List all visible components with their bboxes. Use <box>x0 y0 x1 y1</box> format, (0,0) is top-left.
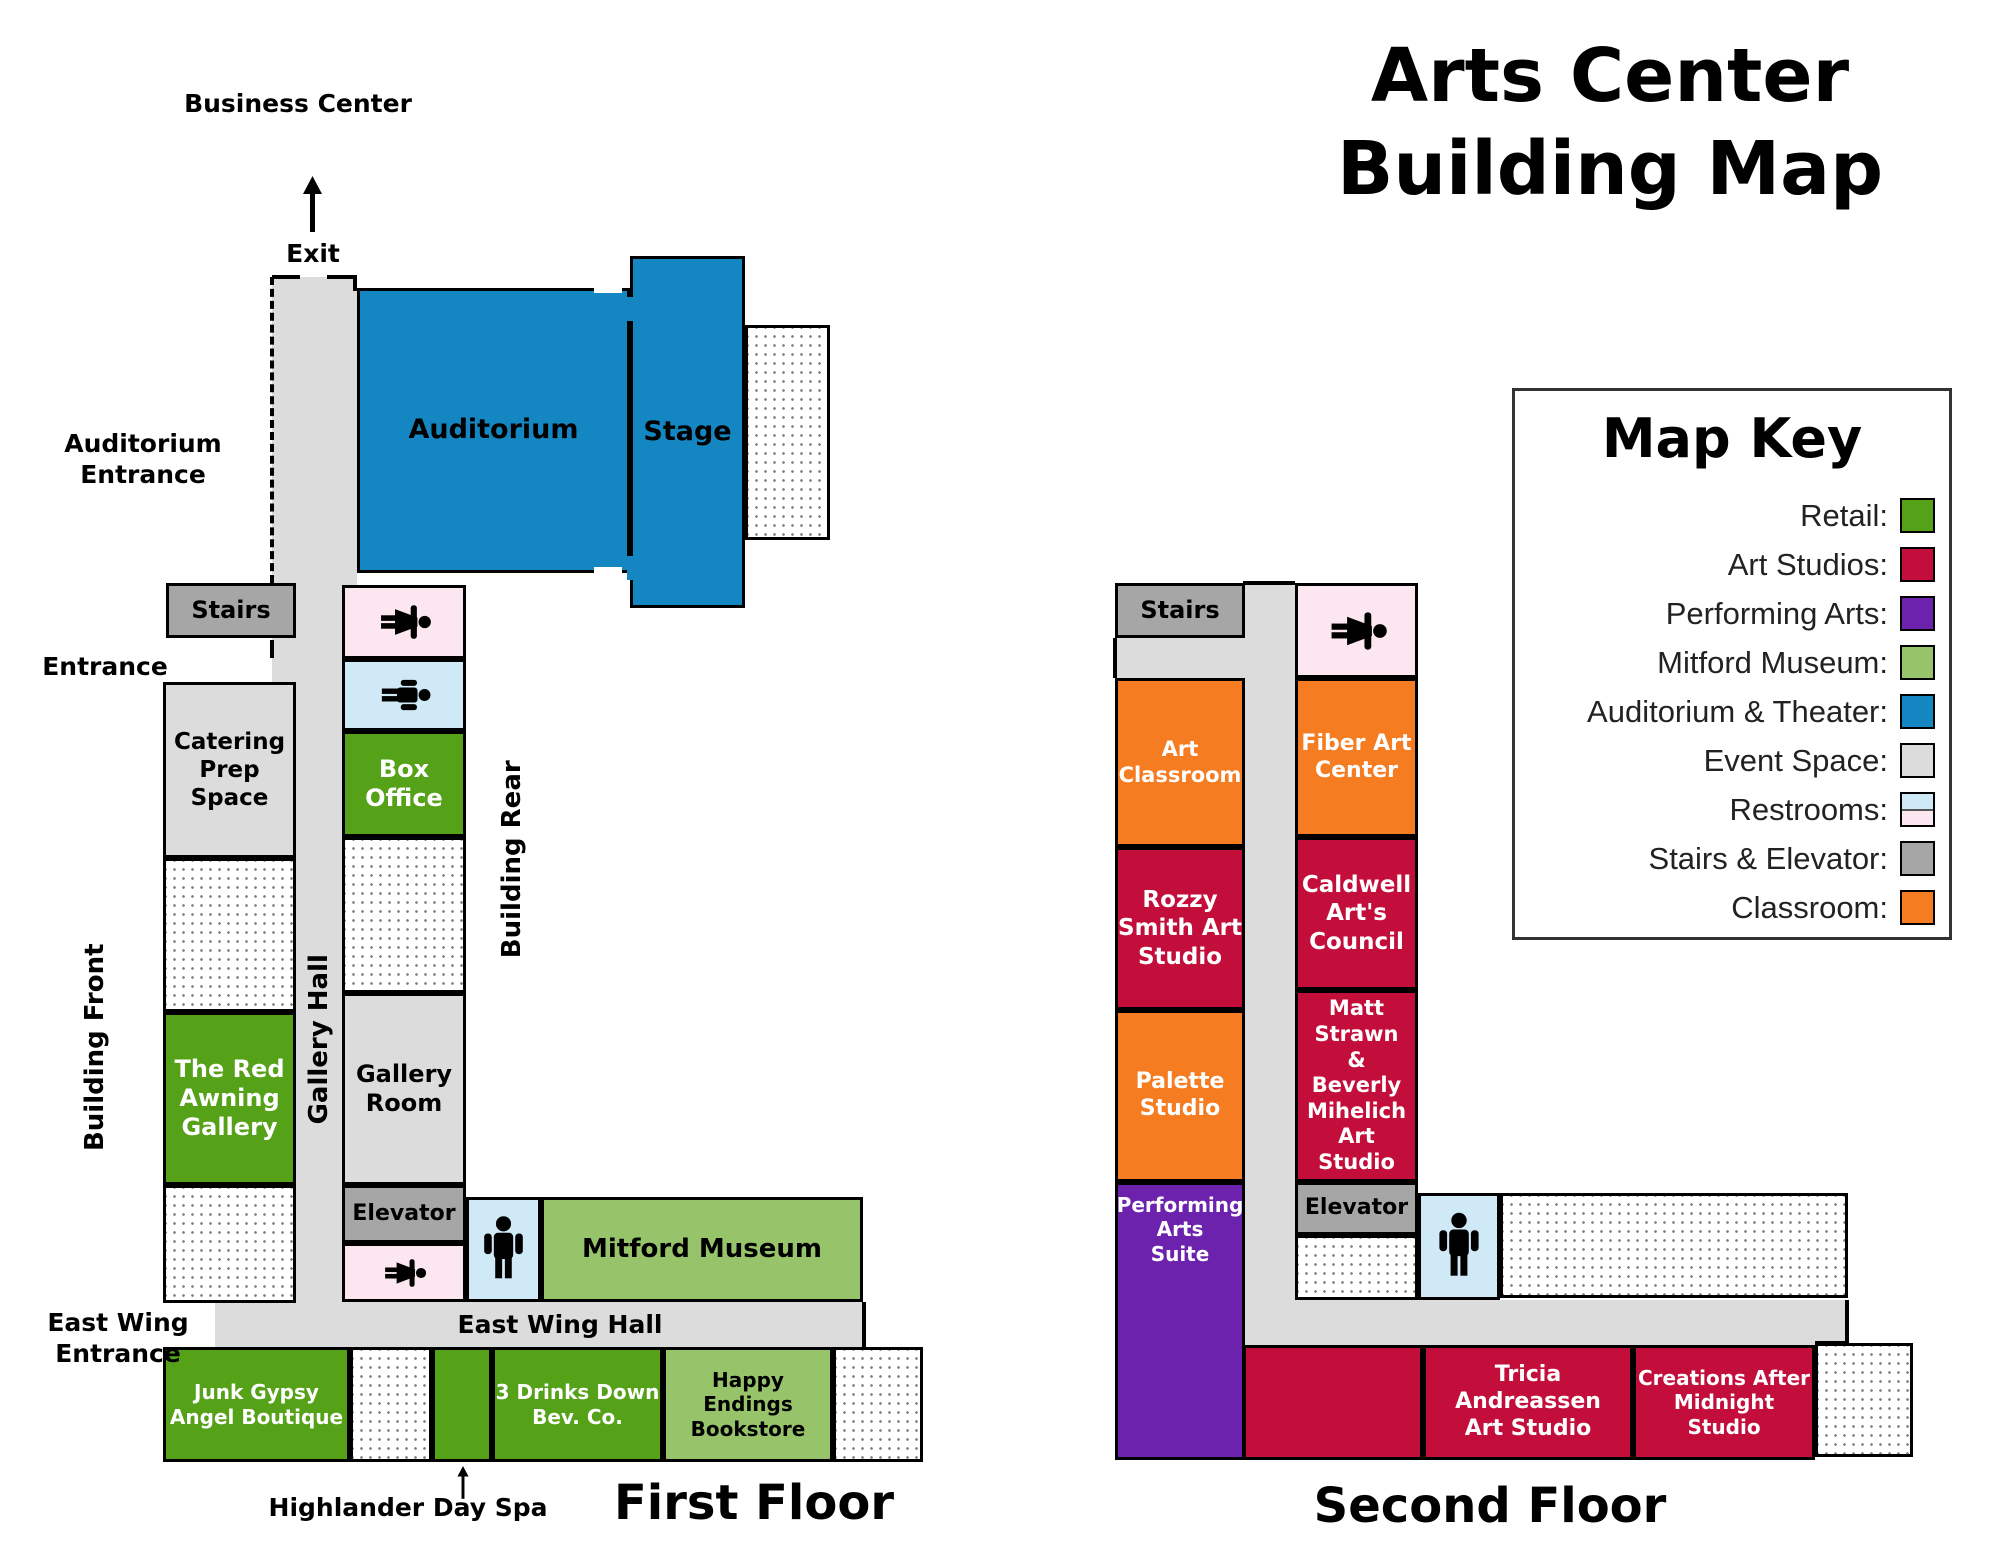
door-gap <box>594 567 622 575</box>
retail-swatch <box>1900 498 1935 533</box>
building-front-label: Building Front <box>79 927 112 1167</box>
room-happy-endings-bookstore: Happy Endings Bookstore <box>663 1347 833 1462</box>
mens-restroom <box>466 1197 541 1302</box>
room-palette-studio: Palette Studio <box>1115 1010 1245 1182</box>
key-row-event-space: Event Space: <box>1515 736 1949 785</box>
key-row-retail: Retail: <box>1515 491 1949 540</box>
classroom-swatch <box>1900 890 1935 925</box>
dashed-wall <box>270 277 274 583</box>
room-unlabeled-art-studio <box>1243 1345 1423 1460</box>
woman-icon <box>381 1250 427 1296</box>
room-auditorium: Auditorium <box>357 288 630 573</box>
room-stage: Stage <box>630 256 745 608</box>
exit-arrow <box>303 176 322 234</box>
unassigned-space <box>342 837 466 993</box>
unassigned-space <box>833 1347 923 1462</box>
key-label: Art Studios: <box>1728 547 1888 583</box>
art-studios-swatch <box>1900 547 1935 582</box>
mens-restroom <box>342 659 466 731</box>
mens-restroom <box>1418 1193 1500 1300</box>
unassigned-space <box>350 1347 432 1462</box>
room-catering-prep-space: Catering Prep Space <box>163 682 296 858</box>
performing-arts-swatch <box>1900 596 1935 631</box>
door-gap <box>594 285 622 293</box>
wall <box>1113 638 1117 678</box>
unassigned-space <box>1815 1343 1913 1457</box>
gallery-hall-label: Gallery Hall <box>303 919 336 1159</box>
restrooms-swatch-men <box>1902 794 1933 809</box>
key-label: Restrooms: <box>1730 792 1888 828</box>
key-row-mitford-museum: Mitford Museum: <box>1515 638 1949 687</box>
door-gap <box>627 297 636 321</box>
wall <box>1845 1300 1849 1345</box>
man-icon <box>469 1215 538 1285</box>
key-row-auditorium-theater: Auditorium & Theater: <box>1515 687 1949 736</box>
key-row-performing-arts: Performing Arts: <box>1515 589 1949 638</box>
second-floor-corridor-stub <box>1115 638 1243 678</box>
man-icon <box>377 668 431 722</box>
wall <box>272 275 300 279</box>
room-elevator-second-floor: Elevator <box>1295 1182 1418 1235</box>
page-title: Arts Center Building Map <box>1250 30 1970 216</box>
east-wing-entrance-label: East Wing Entrance <box>8 1307 228 1370</box>
room-tricia-andreassen-art-studio: Tricia Andreassen Art Studio <box>1423 1345 1633 1460</box>
room-box-office: Box Office <box>342 731 466 837</box>
unassigned-space <box>163 1185 296 1303</box>
room-elevator-first-floor: Elevator <box>342 1185 466 1243</box>
restrooms-swatch-women <box>1902 811 1933 826</box>
womens-restroom <box>1295 583 1418 678</box>
key-label: Performing Arts: <box>1666 596 1888 632</box>
business-center-label: Business Center <box>148 88 448 119</box>
highlander-day-spa-label: Highlander Day Spa <box>248 1492 568 1523</box>
room-art-classroom: Art Classroom <box>1115 678 1245 847</box>
womens-restroom <box>342 1243 466 1302</box>
auditorium-theater-swatch <box>1900 694 1935 729</box>
map-key-rows: Retail: Art Studios: Performing Arts: Mi… <box>1515 491 1949 932</box>
key-label: Classroom: <box>1731 890 1888 926</box>
event-space-swatch <box>1900 743 1935 778</box>
room-mitford-museum: Mitford Museum <box>541 1197 863 1302</box>
room-three-drinks-down: 3 Drinks Down Bev. Co. <box>492 1347 663 1462</box>
key-row-restrooms: Restrooms: <box>1515 785 1949 834</box>
mitford-museum-swatch <box>1900 645 1935 680</box>
door-gap <box>627 556 636 580</box>
up-arrow-icon <box>303 176 322 234</box>
womens-restroom <box>342 585 466 659</box>
map-key-title: Map Key <box>1515 407 1949 470</box>
room-fiber-art-center: Fiber Art Center <box>1295 678 1418 837</box>
unassigned-space <box>745 325 830 540</box>
room-stairs-second-floor: Stairs <box>1115 583 1245 638</box>
auditorium-entrance-label: Auditorium Entrance <box>23 428 263 491</box>
key-row-art-studios: Art Studios: <box>1515 540 1949 589</box>
key-label: Retail: <box>1800 498 1888 534</box>
key-row-stairs-elevator: Stairs & Elevator: <box>1515 834 1949 883</box>
wall <box>862 1302 866 1347</box>
woman-icon <box>376 594 432 650</box>
room-performing-arts-suite: Performing Arts Suite <box>1115 1182 1245 1460</box>
man-icon <box>1424 1212 1494 1282</box>
key-label: Auditorium & Theater: <box>1587 694 1888 730</box>
room-caldwell-arts-council: Caldwell Art's Council <box>1295 837 1418 990</box>
unassigned-space <box>1295 1235 1418 1300</box>
stairs-elevator-swatch <box>1900 841 1935 876</box>
second-floor-corridor-vertical <box>1243 583 1295 1300</box>
wall <box>270 640 274 658</box>
room-gallery-room: Gallery Room <box>342 993 466 1185</box>
wall <box>1243 581 1295 585</box>
map-key: Map Key Retail: Art Studios: Performing … <box>1512 388 1952 940</box>
restrooms-swatch <box>1900 792 1935 827</box>
key-label: Event Space: <box>1704 743 1888 779</box>
unassigned-space <box>1500 1193 1848 1298</box>
first-floor-title: First Floor <box>554 1475 954 1531</box>
building-map-page: Auditorium Stage Stairs Catering Prep Sp… <box>0 0 2000 1545</box>
second-floor-title: Second Floor <box>1290 1478 1690 1534</box>
east-wing-hall-label: East Wing Hall <box>410 1309 710 1340</box>
room-creations-after-midnight-studio: Creations After Midnight Studio <box>1633 1345 1815 1460</box>
entrance-label: Entrance <box>5 651 205 682</box>
room-stairs-first-floor: Stairs <box>166 583 296 638</box>
room-red-awning-gallery: The Red Awning Gallery <box>163 1012 296 1185</box>
second-floor-corridor-horizontal <box>1243 1300 1848 1345</box>
exit-label: Exit <box>263 238 363 269</box>
woman-icon <box>1326 600 1388 662</box>
room-highlander-day-spa <box>432 1347 492 1462</box>
key-label: Stairs & Elevator: <box>1649 841 1888 877</box>
unassigned-space <box>163 858 296 1012</box>
key-label: Mitford Museum: <box>1657 645 1888 681</box>
room-matt-strawn-beverly-mihelich-art-studio: Matt Strawn & Beverly Mihelich Art Studi… <box>1295 990 1418 1182</box>
key-row-classroom: Classroom: <box>1515 883 1949 932</box>
building-rear-label: Building Rear <box>496 739 529 979</box>
room-rozzy-smith-art-studio: Rozzy Smith Art Studio <box>1115 847 1245 1010</box>
